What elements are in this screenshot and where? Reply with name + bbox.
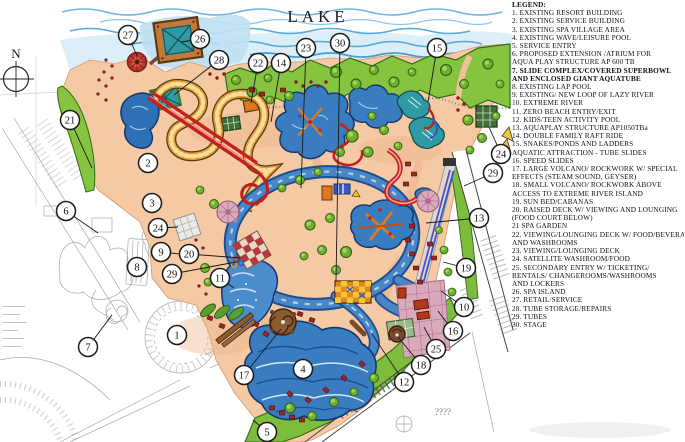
- map-marker-8: 8: [128, 258, 147, 277]
- legend-item: 30. STAGE: [512, 321, 684, 329]
- legend-item: 28. TUBE STORAGE/REPAIRS: [512, 305, 684, 313]
- legend-item: 19. SUN BED/CABANAS: [512, 198, 684, 206]
- legend-item: 8. EXISTING LAP POOL: [512, 83, 684, 91]
- map-marker-1: 1: [168, 326, 187, 345]
- legend-item: EFFECTS (STEAM SOUND, GEYSER): [512, 173, 684, 181]
- legend-item: 4. EXISTING WAVE/LEISURE POOL: [512, 34, 684, 42]
- svg-text:24: 24: [496, 150, 507, 161]
- legend-item: 5. SERVICE ENTRY: [512, 42, 684, 50]
- legend-item: 12. KIDS/TEEN ACTIVITY POOL: [512, 116, 684, 124]
- svg-text:16: 16: [448, 327, 459, 338]
- legend-item: 1. EXISTING RESORT BUILDING: [512, 9, 684, 17]
- stage-checker-floor: [335, 281, 371, 303]
- legend-item: 24. SATELLITE WASHROOM/FOOD: [512, 255, 684, 263]
- svg-text:29: 29: [167, 270, 178, 281]
- legend-item: 3. EXISTING SPA VILLAGE AREA: [512, 26, 684, 34]
- legend-item: 20. RAISED DECK W/ VIEWING AND LOUNGING: [512, 206, 684, 214]
- legend-item: (FOOD COURT BELOW): [512, 214, 684, 222]
- legend-item: 27. RETAIL/SERVICE: [512, 296, 684, 304]
- map-marker-2: 2: [139, 154, 158, 173]
- large-volcano: [270, 309, 296, 335]
- map-marker-6: 6: [57, 202, 99, 234]
- waterpark-masterplan-page: LAKE ???? N 2726282214233015212362492029…: [0, 0, 685, 442]
- unknown-marks-label: ????: [435, 407, 451, 417]
- svg-text:27: 27: [123, 31, 134, 42]
- svg-text:25: 25: [431, 345, 442, 356]
- legend-title: LEGEND:: [512, 1, 684, 9]
- legend-item: 7. SLIDE COMPLEX/COVERED SUPERBOWL: [512, 67, 684, 75]
- legend-item: AND WASHROOMS: [512, 239, 684, 247]
- svg-text:1: 1: [174, 331, 179, 342]
- svg-text:8: 8: [134, 263, 139, 274]
- svg-text:2: 2: [145, 159, 150, 170]
- legend-item: 25. SECONDARY ENTRY W/ TICKETING/: [512, 264, 684, 272]
- rosette-plaza-east: [417, 190, 439, 212]
- legend-item: 15. SNAKES/PONDS AND LADDERS: [512, 140, 684, 148]
- svg-text:15: 15: [432, 44, 443, 55]
- svg-text:13: 13: [474, 214, 485, 225]
- svg-text:6: 6: [63, 207, 68, 218]
- map-marker-7: 7: [79, 315, 113, 357]
- rosette-plaza-west: [217, 201, 239, 223]
- legend-item: 17. LARGE VOLCANO/ ROCKWORK W/ SPECIAL: [512, 165, 684, 173]
- svg-text:12: 12: [399, 378, 410, 389]
- svg-text:19: 19: [461, 264, 472, 275]
- svg-text:11: 11: [215, 274, 225, 285]
- legend-item: 21 SPA GARDEN: [512, 222, 684, 230]
- svg-text:28: 28: [214, 56, 225, 67]
- svg-text:7: 7: [85, 343, 90, 354]
- legend-item: AQUATIC ATTRACTION - TUBE SLIDES: [512, 149, 684, 157]
- small-volcano: [389, 326, 405, 342]
- legend-item: 18. SMALL VOLCANO/ ROCKWORK ABOVE: [512, 181, 684, 189]
- map-marker-4: 4: [294, 360, 313, 379]
- legend-item: AND LOCKERS: [512, 280, 684, 288]
- svg-text:4: 4: [300, 365, 306, 376]
- map-marker-3: 3: [143, 194, 162, 213]
- svg-text:23: 23: [301, 44, 312, 55]
- svg-text:3: 3: [149, 199, 154, 210]
- svg-text:5: 5: [264, 428, 269, 439]
- svg-text:26: 26: [195, 35, 206, 46]
- svg-text:24: 24: [153, 224, 164, 235]
- legend-item: 10. EXTREME RIVER: [512, 99, 684, 107]
- legend-item: 26. SPA ISLAND: [512, 288, 684, 296]
- svg-text:21: 21: [65, 116, 76, 127]
- legend-panel: LEGEND: 1. EXISTING RESORT BUILDING2. EX…: [512, 1, 684, 329]
- legend-item: ACCESS TO EXTREME RIVER ISLAND: [512, 190, 684, 198]
- legend-item: 29. TUBES: [512, 313, 684, 321]
- compass-rose: N: [0, 46, 34, 97]
- svg-text:18: 18: [416, 361, 427, 372]
- legend-item: 16. SPEED SLIDES: [512, 157, 684, 165]
- svg-text:17: 17: [239, 371, 250, 382]
- legend-item: 13. AQUAPLAY STRUCTURE AP1050TBa: [512, 124, 684, 132]
- legend-item: AQUA PLAY STRUCTURE AP 600 TB: [512, 58, 684, 66]
- legend-item: 22. VIEWING/LOUNGING DECK W/ FOOD/BEVERA…: [512, 231, 684, 239]
- lake-label: LAKE: [287, 7, 348, 26]
- svg-text:20: 20: [184, 250, 195, 261]
- legend-item: 23. VIEWING/LOUNGING DECK: [512, 247, 684, 255]
- legend-item: 9. EXISTING/ NEW LOOP OF LAZY RIVER: [512, 91, 684, 99]
- legend-list: 1. EXISTING RESORT BUILDING2. EXISTING S…: [512, 9, 684, 329]
- legend-item: AND ENCLOSED GIANT AQUATUBE: [512, 75, 684, 83]
- legend-item: 2. EXISTING SERVICE BUILDING: [512, 17, 684, 25]
- legend-item: 6. PROPOSED EXTENSION /ATRIUM FOR: [512, 50, 684, 58]
- svg-text:22: 22: [253, 59, 264, 70]
- svg-text:10: 10: [459, 303, 470, 314]
- legend-item: RENTALS/ CHANGEROOMS/WASHROOMS: [512, 272, 684, 280]
- legend-item: 14. DOUBLE FAMILY RAFT RIDE: [512, 132, 684, 140]
- svg-text:30: 30: [335, 39, 346, 50]
- svg-text:9: 9: [158, 248, 163, 259]
- legend-item: 11. ZERO BEACH ENTRY/EXIT: [512, 108, 684, 116]
- compass-north-label: N: [11, 46, 21, 61]
- svg-text:29: 29: [488, 169, 499, 180]
- svg-text:14: 14: [276, 59, 287, 70]
